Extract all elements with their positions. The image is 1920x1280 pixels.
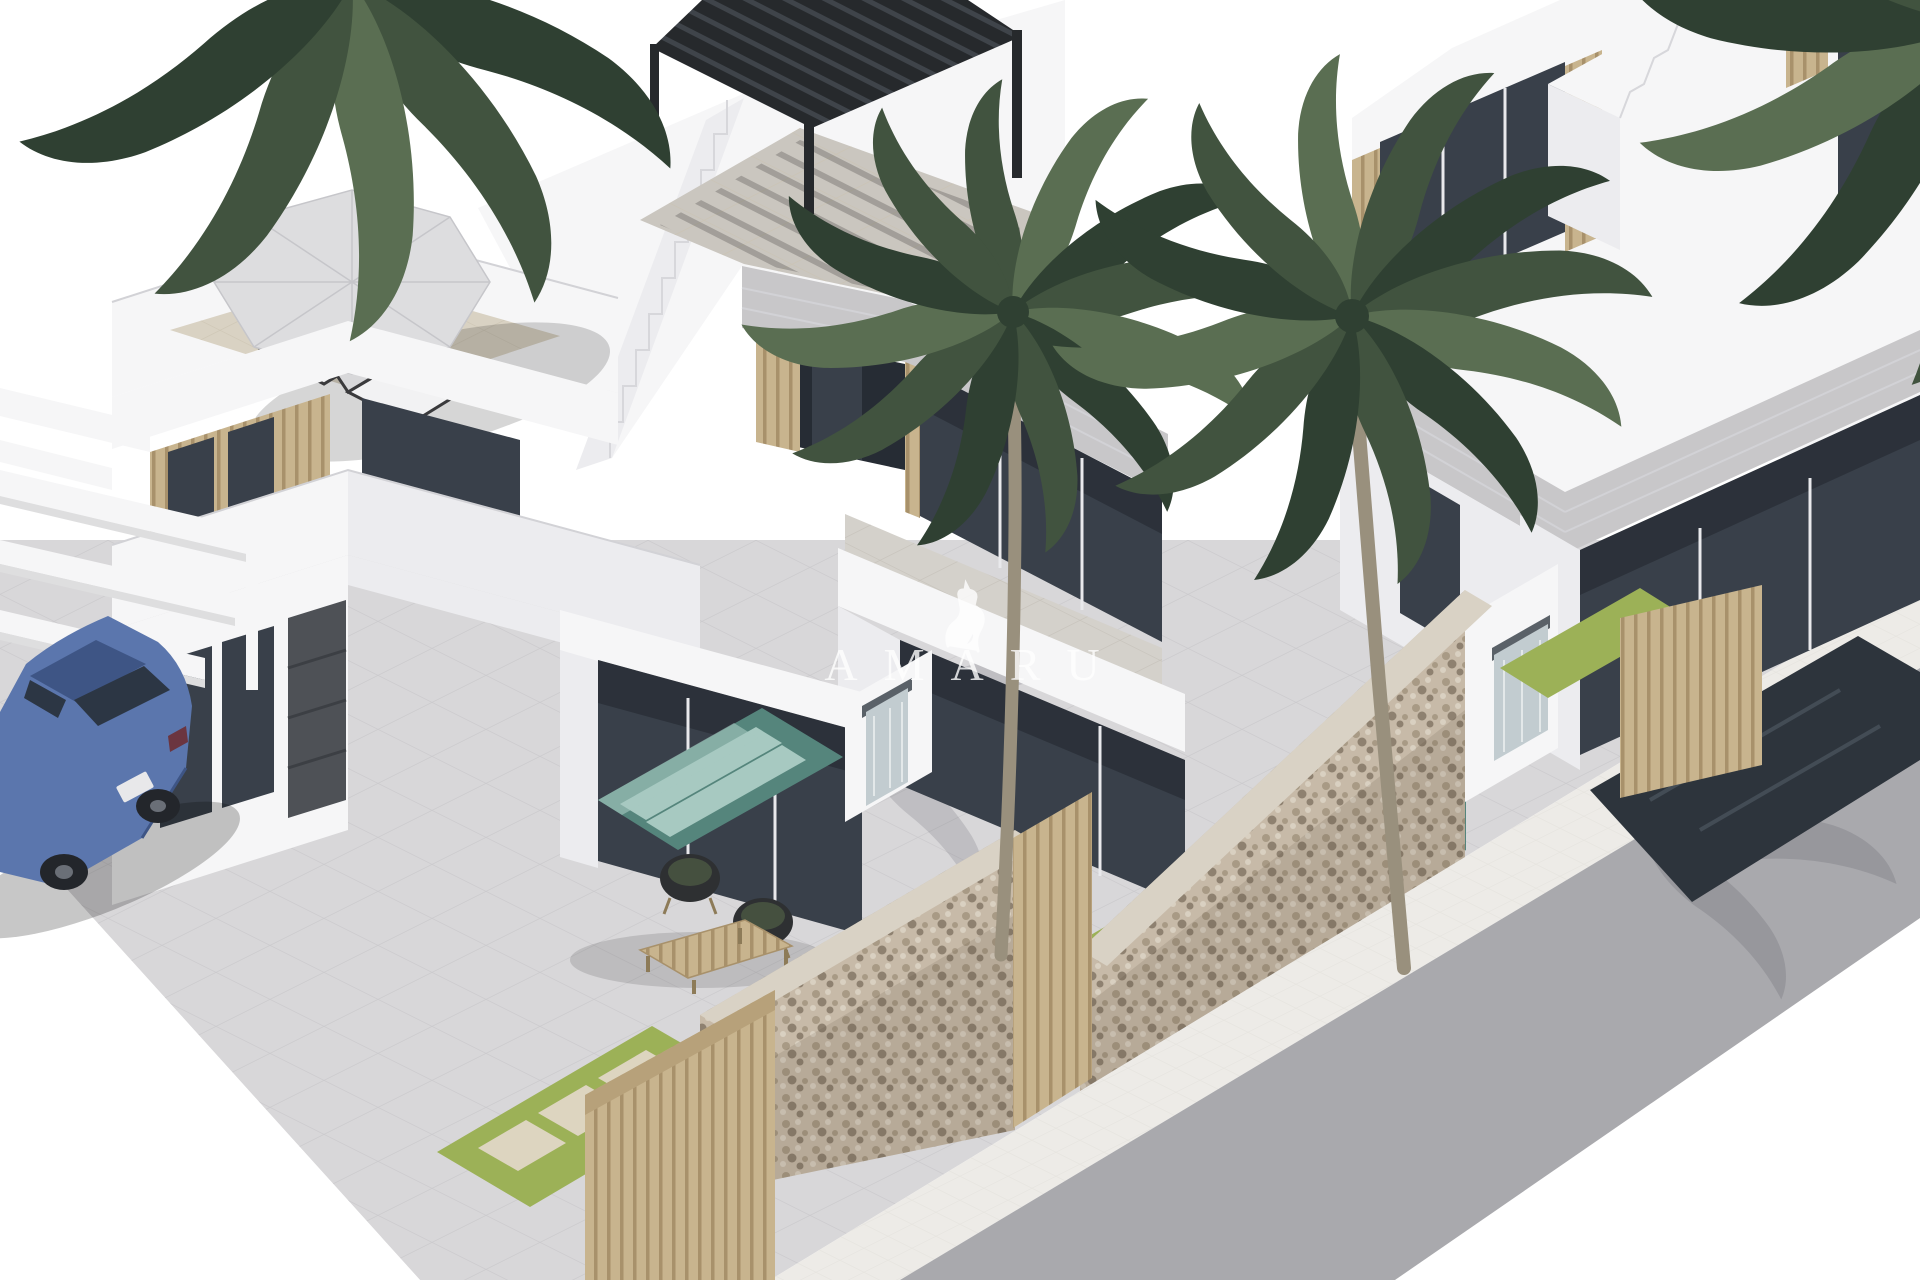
render-image: AMARU [0, 0, 1920, 1280]
watermark-text: AMARU [824, 639, 1125, 690]
wood-gate-middle [1013, 792, 1092, 1128]
wood-gate-right [1620, 585, 1762, 798]
garage-door [288, 600, 346, 818]
